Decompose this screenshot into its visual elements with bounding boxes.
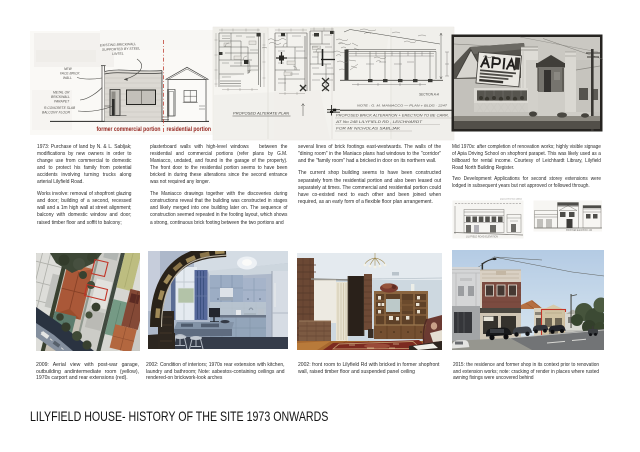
svg-text:FACE BRICK: FACE BRICK — [60, 72, 80, 76]
svg-text:proposed first floor addition: proposed first floor addition — [500, 198, 523, 201]
svg-text:PROPOSED ALTERATE PLAN: PROPOSED ALTERATE PLAN — [233, 111, 289, 116]
svg-text:R.CONCRETE SLAB: R.CONCRETE SLAB — [44, 106, 76, 110]
svg-text:LILYFIELD ROAD ELEVATION: LILYFIELD ROAD ELEVATION — [466, 235, 498, 239]
svg-text:LINTEL: LINTEL — [112, 52, 124, 56]
svg-text:WALL: WALL — [63, 76, 72, 80]
svg-text:PROPOSED ELEVATION 1:100: PROPOSED ELEVATION 1:100 — [566, 229, 593, 232]
svg-text:residential portion: residential portion — [167, 126, 212, 133]
svg-text:NEW: NEW — [64, 67, 73, 71]
svg-text:AT No 248 LILYFIELD RD , LEIC: AT No 248 LILYFIELD RD , LEICHHARDT — [335, 120, 424, 124]
svg-text:PARAPET: PARAPET — [54, 100, 70, 104]
svg-text:BRICKWALL: BRICKWALL — [51, 95, 70, 99]
svg-text:former commercial portion: former commercial portion — [97, 126, 161, 133]
svg-text:METAL OR: METAL OR — [53, 91, 70, 95]
svg-text:NOTE : G. M. MANIACCO — PLAN: NOTE : G. M. MANIACCO — PLAN + BLDG · 22… — [357, 104, 447, 108]
svg-text:BALCONY FLOOR: BALCONY FLOOR — [42, 111, 71, 115]
svg-text:SECTION A-A: SECTION A-A — [419, 93, 440, 97]
svg-text:FOR Mr NICHOLAS SABLJAK: FOR Mr NICHOLAS SABLJAK — [336, 127, 401, 131]
svg-text:PROPOSED BRICK ALTERATION + ER: PROPOSED BRICK ALTERATION + ERECTION TO … — [336, 114, 449, 118]
